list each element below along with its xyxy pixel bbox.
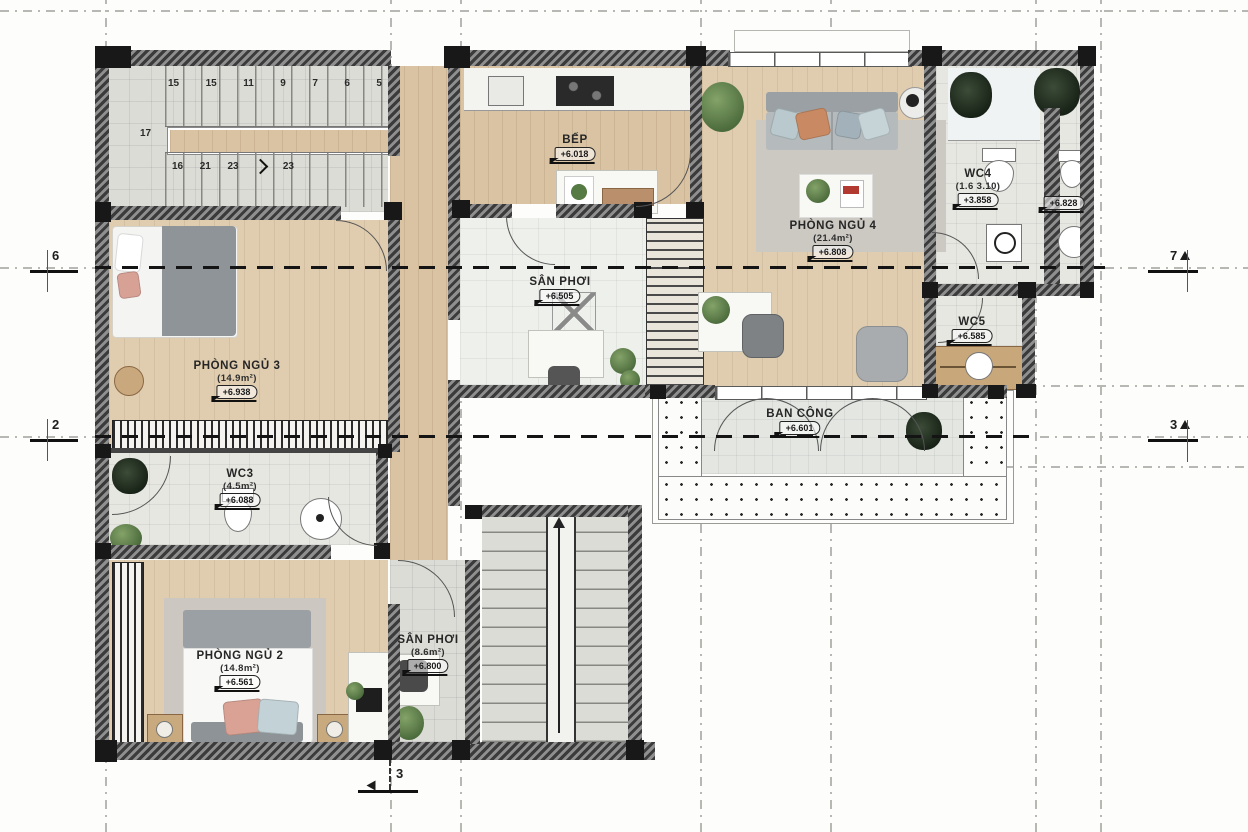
column bbox=[95, 46, 131, 68]
room-name: WC3 bbox=[226, 468, 253, 480]
desk-chair bbox=[742, 314, 784, 358]
room-name: WC5 bbox=[958, 316, 985, 328]
room-area: (14.8m²) bbox=[220, 663, 260, 674]
wall-segment bbox=[376, 452, 388, 547]
column bbox=[988, 385, 1004, 399]
wall-segment bbox=[924, 66, 936, 386]
level-tag: +6.800 bbox=[408, 659, 449, 673]
grid-line-horizontal bbox=[1105, 267, 1248, 269]
column bbox=[1016, 384, 1036, 398]
level-tag: +6.585 bbox=[952, 329, 993, 343]
wall-segment bbox=[95, 50, 391, 66]
column bbox=[95, 543, 111, 559]
wall-segment bbox=[448, 380, 460, 506]
plant-icon bbox=[806, 179, 830, 203]
axis-arrow bbox=[1180, 420, 1190, 429]
column bbox=[95, 444, 111, 458]
stair2-arrow-line bbox=[558, 528, 560, 733]
wc4-sink-bowl bbox=[994, 232, 1016, 254]
room-name: PHÒNG NGỦ 3 bbox=[193, 360, 280, 372]
room-name: SÂN PHƠI bbox=[529, 276, 590, 288]
room-label-wc5: WC5 +6.585 bbox=[952, 316, 993, 343]
room-area: (1.6 3.10) bbox=[956, 181, 1001, 192]
wall-segment bbox=[448, 66, 460, 320]
wc3-sink-drain bbox=[316, 514, 324, 522]
wall-segment bbox=[95, 545, 331, 559]
room-label-bedroom3: PHÒNG NGỦ 3 (14.9m²) +6.938 bbox=[193, 360, 280, 399]
wall-segment bbox=[95, 206, 341, 220]
grid-line-horizontal bbox=[0, 10, 1248, 12]
plant-dark-icon bbox=[950, 72, 992, 118]
column bbox=[95, 202, 111, 222]
room-label-bedroom4: PHÒNG NGỦ 4 (21.4m²) +6.808 bbox=[789, 220, 876, 259]
axis-tick bbox=[1148, 439, 1198, 442]
stair-step-number: 21 bbox=[200, 161, 211, 172]
axis-label-left-top: 6 bbox=[52, 248, 59, 263]
level-tag: +6.601 bbox=[780, 421, 821, 435]
column bbox=[378, 444, 392, 458]
grid-line-horizontal bbox=[1005, 466, 1248, 468]
stair-landing bbox=[168, 128, 392, 154]
room-label-wc4: WC4 (1.6 3.10) +3.858 bbox=[956, 168, 1001, 207]
column bbox=[444, 46, 470, 68]
level-tag-wc4b: +6.828 bbox=[1044, 196, 1085, 210]
bedroom2-blanket bbox=[183, 610, 311, 648]
room-area: (21.4m²) bbox=[813, 233, 853, 244]
stair-step-number: 23 bbox=[228, 161, 239, 172]
column bbox=[650, 385, 666, 399]
plant-icon bbox=[700, 82, 744, 132]
wall-segment bbox=[930, 284, 1094, 296]
nightstand-decor bbox=[326, 721, 343, 738]
wall-segment bbox=[388, 604, 400, 744]
plant-icon bbox=[702, 296, 730, 324]
grid-line-vertical bbox=[1100, 0, 1102, 832]
stair-step-number: 6 bbox=[344, 78, 350, 89]
floor-plan-canvas: 15 15 11 9 7 6 5 17 16 21 23 23 bbox=[0, 0, 1248, 832]
stair-direction-arrow bbox=[253, 159, 269, 175]
column bbox=[452, 200, 470, 218]
room-name: PHÒNG NGỦ 4 bbox=[789, 220, 876, 232]
room-area: (4.5m²) bbox=[223, 481, 257, 492]
bedroom2-wardrobe bbox=[112, 562, 144, 744]
column bbox=[922, 46, 942, 66]
plant-icon bbox=[346, 682, 364, 700]
axis-label-right-top: 7 bbox=[1170, 248, 1177, 263]
stair-step-number: 9 bbox=[280, 78, 286, 89]
plant-dark-icon bbox=[112, 458, 148, 494]
axis-line-2-3 bbox=[95, 435, 1040, 438]
wall-segment bbox=[1080, 66, 1094, 290]
room-label-san-phoi-2: SÂN PHƠI (8.6m²) +6.800 bbox=[397, 634, 458, 673]
armchair bbox=[856, 326, 908, 382]
kitchen-sink bbox=[488, 76, 524, 106]
axis-tick bbox=[1148, 270, 1198, 273]
axis-label-left-bottom: 2 bbox=[52, 417, 59, 432]
column bbox=[922, 384, 938, 398]
axis-tick-v bbox=[1187, 420, 1188, 462]
room-area: (8.6m²) bbox=[411, 647, 445, 658]
balcony-planter-bottom bbox=[658, 476, 1007, 520]
bedroom4-window bbox=[728, 52, 912, 67]
vanity-sink bbox=[965, 352, 993, 380]
wall-segment bbox=[628, 505, 642, 744]
wall-segment bbox=[448, 50, 690, 66]
axis-arrow bbox=[1180, 251, 1190, 260]
column bbox=[95, 740, 117, 762]
room-name: WC4 bbox=[964, 168, 991, 180]
axis-dash-v bbox=[389, 760, 391, 790]
column bbox=[626, 740, 644, 760]
axis-label-bottom: 3 bbox=[396, 766, 403, 781]
room-label-wc3: WC3 (4.5m²) +6.088 bbox=[220, 468, 261, 507]
book-cover bbox=[843, 186, 859, 194]
stair-upper-numbers: 15 15 11 9 7 6 5 bbox=[168, 78, 382, 89]
wall-segment bbox=[95, 66, 109, 758]
column bbox=[1080, 282, 1094, 298]
room-area: (14.9m²) bbox=[217, 373, 257, 384]
column bbox=[686, 46, 706, 66]
wall-segment bbox=[388, 206, 400, 452]
pillow bbox=[257, 698, 300, 735]
column bbox=[465, 505, 482, 519]
stair-step-number: 16 bbox=[172, 161, 183, 172]
stair-step-number: 7 bbox=[312, 78, 318, 89]
wall-segment bbox=[388, 66, 400, 156]
axis-tick-v bbox=[1187, 250, 1188, 292]
stair2-arrow-head bbox=[553, 517, 565, 528]
balcony-door-band bbox=[715, 386, 927, 400]
level-tag: +6.088 bbox=[220, 493, 261, 507]
wall-segment bbox=[95, 742, 479, 760]
grid-line-horizontal bbox=[1040, 436, 1248, 438]
stair-upper-flight bbox=[165, 66, 388, 127]
stair-step-number: 15 bbox=[168, 78, 179, 89]
wall-segment bbox=[690, 66, 702, 212]
stair-step-number: 5 bbox=[376, 78, 382, 89]
level-tag: +3.858 bbox=[958, 193, 999, 207]
wall-segment bbox=[465, 560, 480, 744]
nightstand-decor bbox=[156, 721, 173, 738]
room-label-kitchen: BẾP +6.018 bbox=[555, 134, 596, 161]
wall-segment bbox=[480, 505, 630, 517]
axis-tick bbox=[30, 439, 78, 442]
shelf-divider bbox=[646, 218, 704, 387]
axis-tick bbox=[30, 270, 78, 273]
axis-tick-v bbox=[47, 419, 48, 461]
level-tag: +6.828 bbox=[1044, 196, 1085, 210]
room-label-balcony: BAN CÔNG +6.601 bbox=[766, 408, 833, 435]
stair-step-number: 11 bbox=[243, 78, 254, 89]
column bbox=[1018, 282, 1036, 298]
bed-divider bbox=[831, 112, 833, 150]
grid-line-horizontal bbox=[1005, 385, 1248, 387]
book bbox=[840, 180, 864, 208]
stair-step-number: 23 bbox=[283, 161, 294, 172]
wall-segment bbox=[1022, 296, 1035, 388]
room-name: BAN CÔNG bbox=[766, 408, 833, 420]
wall-thin bbox=[109, 448, 389, 453]
axis-arrow bbox=[367, 781, 376, 791]
room-name: SÂN PHƠI bbox=[397, 634, 458, 646]
side-table-decor bbox=[906, 94, 919, 107]
stool bbox=[114, 366, 144, 396]
pillow bbox=[116, 271, 141, 300]
column bbox=[452, 740, 470, 760]
room-name: BẾP bbox=[562, 134, 587, 146]
column bbox=[384, 202, 402, 220]
column bbox=[686, 202, 704, 218]
axis-tick-v bbox=[47, 250, 48, 292]
stair-lower-numbers: 16 21 23 23 bbox=[172, 160, 294, 172]
cooktop bbox=[556, 76, 614, 106]
stair-step-number-17: 17 bbox=[140, 128, 151, 139]
stair2-stringer bbox=[546, 517, 576, 742]
level-tag: +6.938 bbox=[217, 385, 258, 399]
stair-step-number: 15 bbox=[206, 78, 217, 89]
level-tag: +6.505 bbox=[540, 289, 581, 303]
level-tag: +6.561 bbox=[220, 675, 261, 689]
level-tag: +6.018 bbox=[555, 147, 596, 161]
bedroom3-blanket bbox=[162, 226, 236, 336]
axis-line-6-7 bbox=[95, 266, 1105, 269]
level-tag: +6.808 bbox=[813, 245, 854, 259]
column bbox=[1078, 46, 1096, 66]
column bbox=[922, 282, 938, 298]
room-label-san-phoi: SÂN PHƠI +6.505 bbox=[529, 276, 590, 303]
window-sill bbox=[734, 30, 910, 52]
room-label-bedroom2: PHÒNG NGỦ 2 (14.8m²) +6.561 bbox=[196, 650, 283, 689]
room-name: PHÒNG NGỦ 2 bbox=[196, 650, 283, 662]
column bbox=[374, 740, 392, 760]
wall-segment bbox=[556, 204, 646, 218]
axis-label-right-bottom: 3 bbox=[1170, 417, 1177, 432]
wall-segment bbox=[460, 385, 656, 398]
